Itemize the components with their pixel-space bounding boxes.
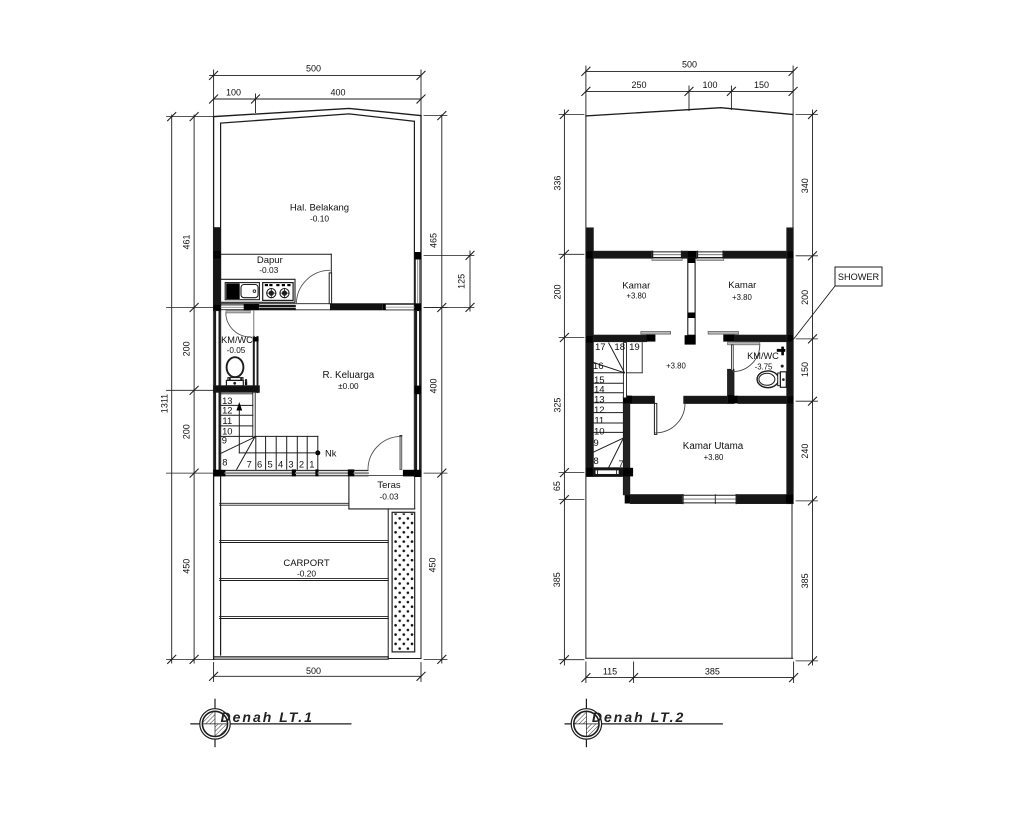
svg-text:+3.80: +3.80 bbox=[666, 361, 686, 370]
svg-text:Hal. Belakang: Hal. Belakang bbox=[290, 203, 349, 214]
svg-text:465: 465 bbox=[429, 233, 439, 248]
svg-text:+3.80: +3.80 bbox=[732, 293, 752, 302]
svg-text:19: 19 bbox=[629, 342, 640, 353]
svg-text:±0.00: ±0.00 bbox=[338, 382, 359, 391]
svg-text:150: 150 bbox=[754, 80, 769, 90]
svg-text:461: 461 bbox=[182, 234, 192, 249]
svg-text:200: 200 bbox=[800, 290, 810, 305]
svg-text:8: 8 bbox=[222, 456, 227, 467]
svg-text:+3.80: +3.80 bbox=[626, 292, 646, 301]
svg-text:12: 12 bbox=[222, 405, 232, 416]
svg-text:Denah LT.1: Denah LT.1 bbox=[221, 709, 314, 725]
svg-text:200: 200 bbox=[553, 284, 563, 299]
svg-text:125: 125 bbox=[457, 274, 467, 289]
svg-text:18: 18 bbox=[614, 342, 625, 353]
svg-text:9: 9 bbox=[222, 435, 227, 446]
svg-text:115: 115 bbox=[603, 667, 617, 677]
svg-text:16: 16 bbox=[593, 361, 604, 372]
svg-text:3: 3 bbox=[288, 458, 293, 469]
svg-text:17: 17 bbox=[595, 342, 606, 353]
svg-text:6: 6 bbox=[257, 458, 262, 469]
svg-text:340: 340 bbox=[800, 178, 810, 193]
svg-text:Kamar: Kamar bbox=[728, 280, 756, 291]
svg-text:336: 336 bbox=[553, 176, 563, 191]
svg-text:8: 8 bbox=[593, 456, 598, 467]
svg-text:Nk: Nk bbox=[325, 447, 337, 458]
svg-text:Kamar Utama: Kamar Utama bbox=[683, 441, 744, 452]
svg-text:1: 1 bbox=[309, 458, 314, 469]
svg-text:150: 150 bbox=[800, 362, 810, 377]
svg-text:13: 13 bbox=[594, 394, 605, 405]
svg-text:100: 100 bbox=[226, 88, 241, 98]
svg-text:65: 65 bbox=[552, 481, 562, 491]
svg-text:400: 400 bbox=[330, 88, 345, 98]
svg-text:KM/WC: KM/WC bbox=[221, 335, 253, 345]
svg-text:385: 385 bbox=[705, 667, 720, 677]
svg-text:KM/WC: KM/WC bbox=[747, 351, 779, 361]
svg-text:200: 200 bbox=[182, 424, 192, 439]
svg-text:-0.05: -0.05 bbox=[227, 346, 246, 355]
svg-text:11: 11 bbox=[594, 416, 604, 427]
svg-text:500: 500 bbox=[306, 666, 321, 676]
svg-text:2: 2 bbox=[299, 458, 304, 469]
svg-text:-0.03: -0.03 bbox=[259, 265, 278, 275]
svg-text:450: 450 bbox=[182, 559, 192, 574]
svg-text:200: 200 bbox=[182, 341, 192, 356]
svg-text:CARPORT: CARPORT bbox=[283, 558, 329, 569]
svg-text:11: 11 bbox=[222, 415, 232, 426]
svg-text:SHOWER: SHOWER bbox=[838, 272, 880, 282]
svg-text:240: 240 bbox=[800, 444, 810, 459]
svg-text:+3.80: +3.80 bbox=[704, 453, 724, 462]
svg-text:100: 100 bbox=[702, 80, 717, 90]
svg-text:450: 450 bbox=[428, 557, 438, 572]
svg-text:R. Keluarga: R. Keluarga bbox=[323, 370, 375, 381]
svg-text:Denah LT.2: Denah LT.2 bbox=[592, 709, 685, 725]
svg-text:5: 5 bbox=[267, 458, 272, 469]
svg-text:250: 250 bbox=[631, 80, 646, 90]
svg-text:9: 9 bbox=[593, 438, 598, 449]
svg-text:500: 500 bbox=[306, 64, 321, 74]
svg-text:Kamar: Kamar bbox=[622, 281, 650, 292]
svg-text:385: 385 bbox=[800, 573, 810, 588]
svg-text:Teras: Teras bbox=[377, 480, 400, 491]
svg-text:1311: 1311 bbox=[159, 394, 169, 413]
svg-text:500: 500 bbox=[682, 60, 697, 70]
svg-text:-3.75: -3.75 bbox=[755, 362, 773, 371]
svg-text:385: 385 bbox=[552, 572, 562, 587]
svg-text:325: 325 bbox=[553, 398, 563, 413]
svg-text:-0.20: -0.20 bbox=[297, 569, 316, 579]
svg-text:10: 10 bbox=[594, 426, 605, 437]
svg-text:7: 7 bbox=[247, 458, 252, 469]
svg-text:-0.10: -0.10 bbox=[310, 214, 329, 224]
svg-text:400: 400 bbox=[429, 378, 439, 393]
svg-text:-0.03: -0.03 bbox=[379, 491, 398, 501]
svg-text:12: 12 bbox=[594, 405, 605, 416]
svg-text:4: 4 bbox=[278, 458, 283, 469]
